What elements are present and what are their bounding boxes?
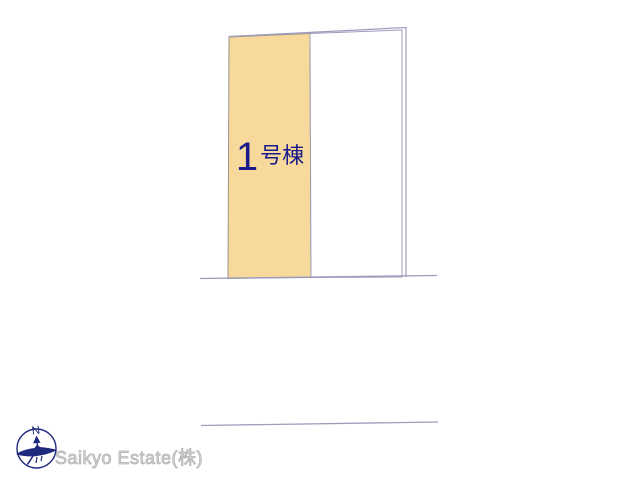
road-boundary-line bbox=[201, 422, 438, 426]
compass-north-icon: N bbox=[16, 425, 58, 468]
bird-silhouette-icon bbox=[16, 445, 58, 457]
bird-tail-stroke bbox=[28, 456, 34, 465]
adjacent-parcel bbox=[310, 30, 402, 278]
site-plan-drawing: N bbox=[0, 0, 640, 480]
lot-1-parcel bbox=[228, 34, 311, 279]
compass-north-label: N bbox=[31, 425, 41, 438]
plot-plan-canvas: N 1 号棟 Saikyo Estate(株) bbox=[0, 0, 640, 480]
bird-legs-strokes bbox=[36, 456, 42, 463]
company-credit: Saikyo Estate(株) bbox=[55, 449, 203, 467]
